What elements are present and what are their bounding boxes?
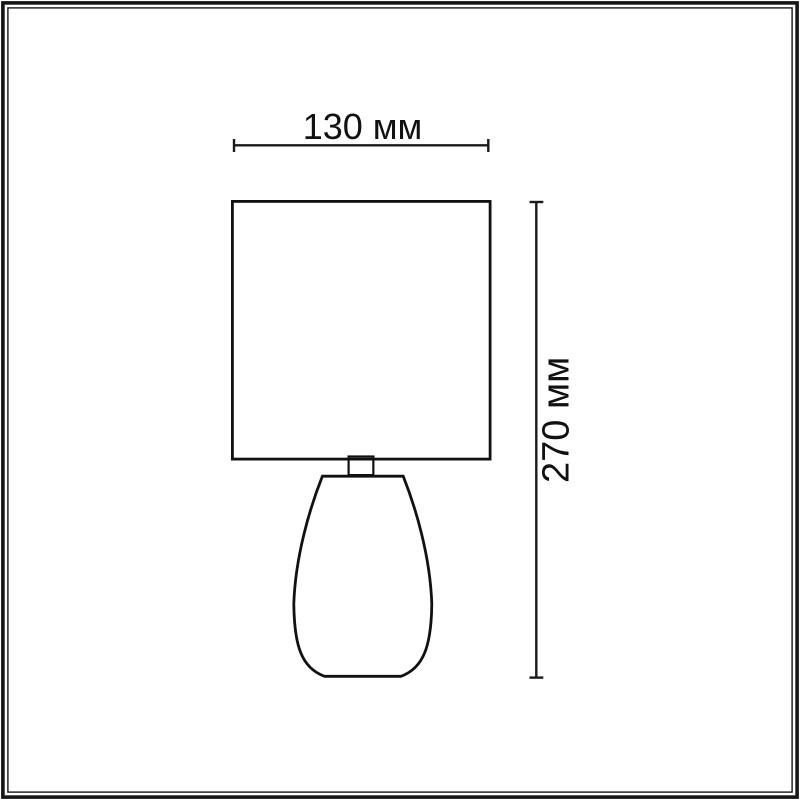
svg-text:130 мм: 130 мм — [303, 106, 423, 147]
svg-text:270 мм: 270 мм — [536, 357, 578, 483]
